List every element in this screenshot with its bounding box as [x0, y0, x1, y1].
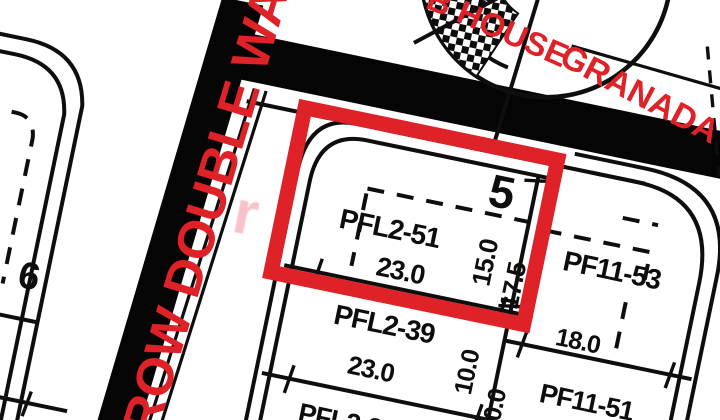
plot-label-pfl2-51: PFL2-51 — [337, 203, 444, 254]
plot-label-pf11-51: PF11-51 — [537, 378, 637, 420]
dim-pf11-53-width: 18.0 — [553, 323, 603, 359]
block6-boundary — [0, 296, 37, 322]
block-number-5: 5 — [484, 164, 519, 220]
block6-road-edge-inner — [0, 44, 74, 420]
setback-pf11-53-v — [614, 302, 626, 361]
dim-pfl2-39-width: 23.0 — [345, 350, 397, 389]
dim-pfl2-39-depth: 10.0 — [449, 347, 485, 397]
map-rotated-layer: 17.5 PFL2-51 5 23.0 15.0 PFL2-39 23.0 10… — [0, 0, 720, 420]
site-plan-map: 17.5 PFL2-51 5 23.0 15.0 PFL2-39 23.0 10… — [0, 0, 720, 420]
setback-pf11-53-top — [623, 218, 658, 225]
plot-label-pfl2-3x: PFL2-3 — [296, 398, 385, 420]
plot-label-6: 6 — [14, 254, 42, 299]
site-plan-canvas: 17.5 PFL2-51 5 23.0 15.0 PFL2-39 23.0 10… — [0, 0, 720, 420]
dim-pf11-51-depth: 10.0 — [476, 387, 512, 420]
bottom-left-boundary — [0, 390, 67, 411]
